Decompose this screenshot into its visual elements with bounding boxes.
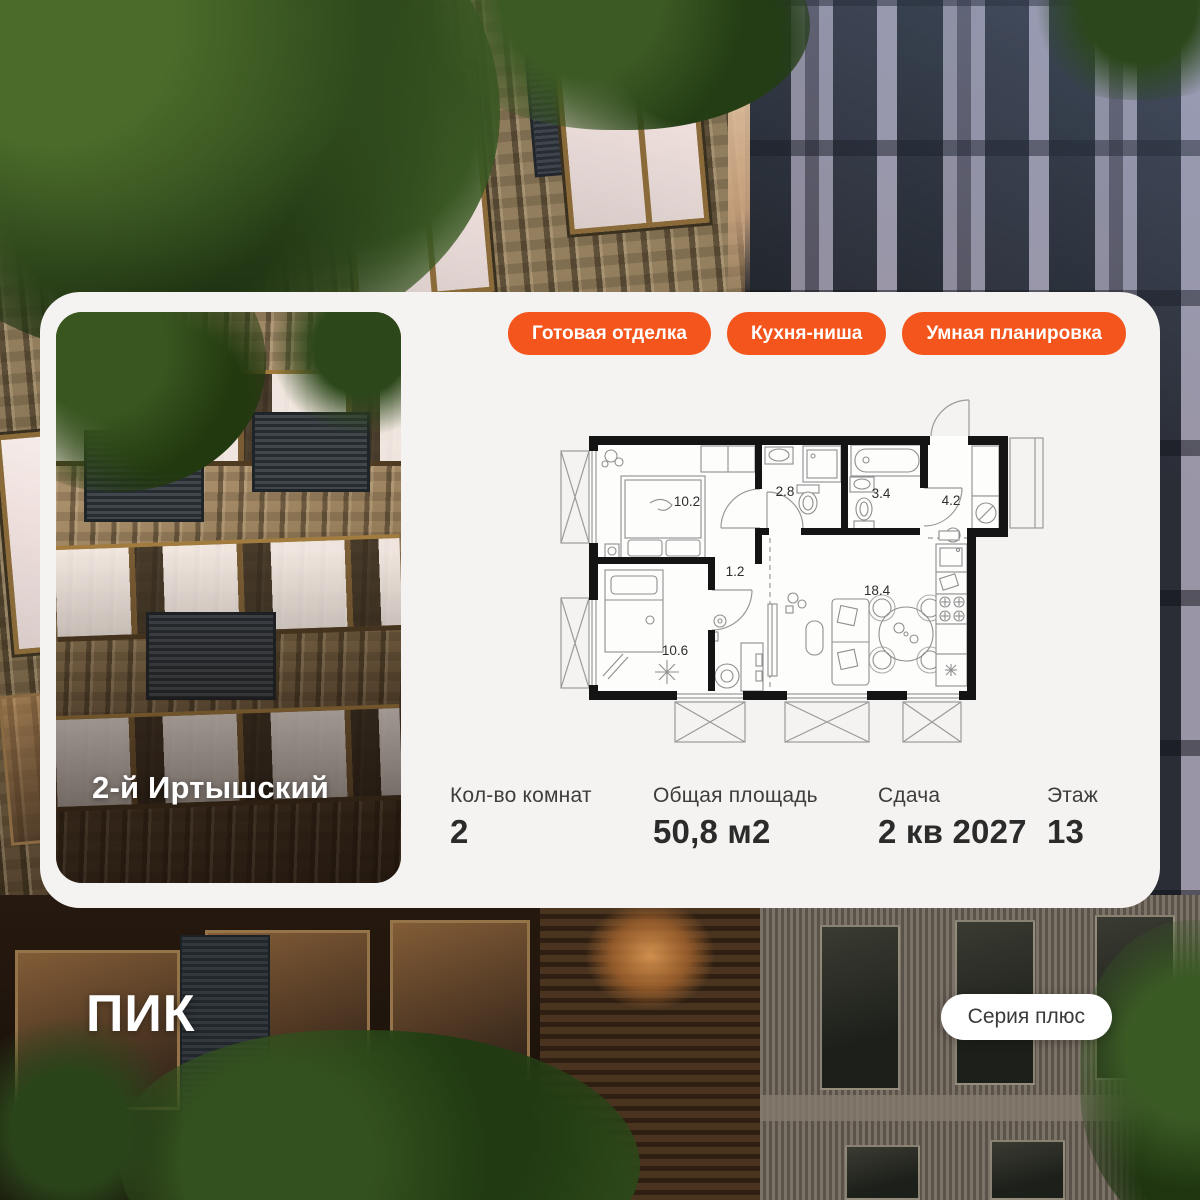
project-photo: 2-й Иртышский	[56, 312, 401, 883]
stat-value: 13	[1047, 813, 1098, 851]
window	[990, 1140, 1065, 1200]
window	[845, 1145, 920, 1200]
stat-value: 2	[450, 813, 592, 851]
window	[820, 925, 900, 1090]
series-badge: Серия плюс	[941, 994, 1112, 1040]
stat-rooms: Кол-во комнат 2	[450, 784, 592, 851]
stat-delivery: Сдача 2 кв 2027	[878, 784, 1027, 851]
stat-value: 2 кв 2027	[878, 813, 1027, 851]
room-area-bathroom-small: 2.8	[776, 484, 795, 499]
badge-kitchen-niche: Кухня-ниша	[727, 312, 886, 355]
room-area-corridor: 1.2	[726, 564, 745, 579]
lit-window-glow	[585, 900, 715, 1010]
apartment-card: 2-й Иртышский Готовая отделка Кухня-ниша…	[40, 292, 1160, 908]
project-name: 2-й Иртышский	[92, 770, 329, 806]
stat-total-area: Общая площадь 50,8 м2	[653, 784, 818, 851]
stat-label: Кол-во комнат	[450, 784, 592, 808]
room-area-bathroom-big: 3.4	[872, 486, 891, 501]
floor-plan: 10.2 2.8 3.4 4.2 1.2 18.4 10.6	[555, 388, 1045, 748]
room-area-living-kitchen: 18.4	[864, 583, 891, 598]
room-area-hallway: 4.2	[942, 493, 961, 508]
stat-label: Этаж	[1047, 784, 1098, 808]
stat-value: 50,8 м2	[653, 813, 818, 851]
promo-banner: 2-й Иртышский Готовая отделка Кухня-ниша…	[0, 0, 1200, 1200]
pik-logo: ПИК	[86, 984, 196, 1044]
stat-floor: Этаж 13	[1047, 784, 1098, 851]
stat-label: Сдача	[878, 784, 1027, 808]
badge-finishing: Готовая отделка	[508, 312, 711, 355]
feature-badges: Готовая отделка Кухня-ниша Умная планиро…	[508, 312, 1126, 355]
stat-label: Общая площадь	[653, 784, 818, 808]
room-area-bedroom-top: 10.2	[674, 494, 700, 509]
room-area-bedroom-bottom: 10.6	[662, 643, 688, 658]
badge-smart-layout: Умная планировка	[902, 312, 1126, 355]
